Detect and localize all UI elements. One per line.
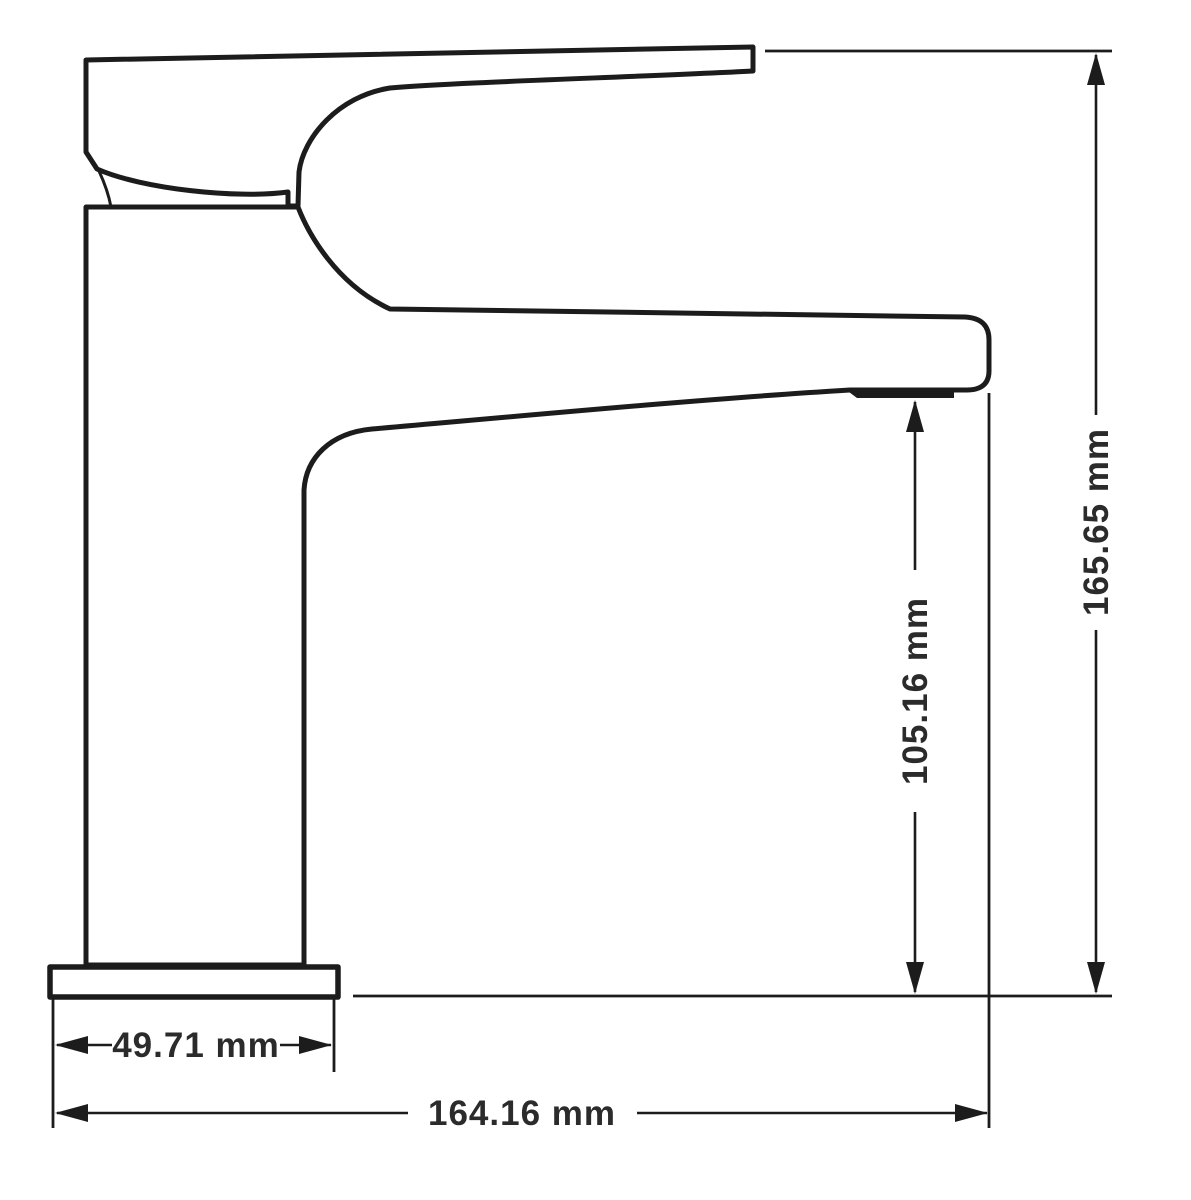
dim-base-width-arrow-left — [55, 1036, 88, 1054]
dim-total-width-arrow-right — [955, 1104, 988, 1122]
dim-total-height: 165.65 mm — [1077, 53, 1116, 994]
faucet-lever-handle-outline — [86, 47, 753, 206]
faucet-base-plate — [50, 967, 338, 997]
dim-total-height-arrow-up — [1087, 53, 1105, 85]
dim-spout-height-label: 105.16 mm — [896, 597, 935, 785]
dim-total-height-label: 165.65 mm — [1077, 428, 1116, 616]
dim-base-width-arrow-right — [299, 1036, 332, 1054]
dim-total-height-arrow-down — [1087, 962, 1105, 994]
faucet-dimension-diagram: 165.65 mm 105.16 mm 49.71 mm 164.16 mm — [0, 0, 1191, 1200]
dim-total-width-arrow-left — [55, 1104, 88, 1122]
dim-total-width-label: 164.16 mm — [428, 1094, 616, 1133]
technical-drawing-canvas: 165.65 mm 105.16 mm 49.71 mm 164.16 mm — [0, 0, 1191, 1200]
faucet-outline-group — [50, 47, 989, 997]
aerator-detail — [845, 389, 954, 398]
dim-spout-height: 105.16 mm — [896, 400, 935, 994]
dim-total-width: 164.16 mm — [55, 1094, 988, 1133]
dim-base-width: 49.71 mm — [55, 1026, 332, 1065]
faucet-body-and-spout-outline — [86, 207, 989, 965]
dim-spout-height-arrow-down — [906, 962, 924, 994]
dim-spout-height-arrow-up — [906, 400, 924, 432]
dim-base-width-label: 49.71 mm — [112, 1026, 280, 1065]
